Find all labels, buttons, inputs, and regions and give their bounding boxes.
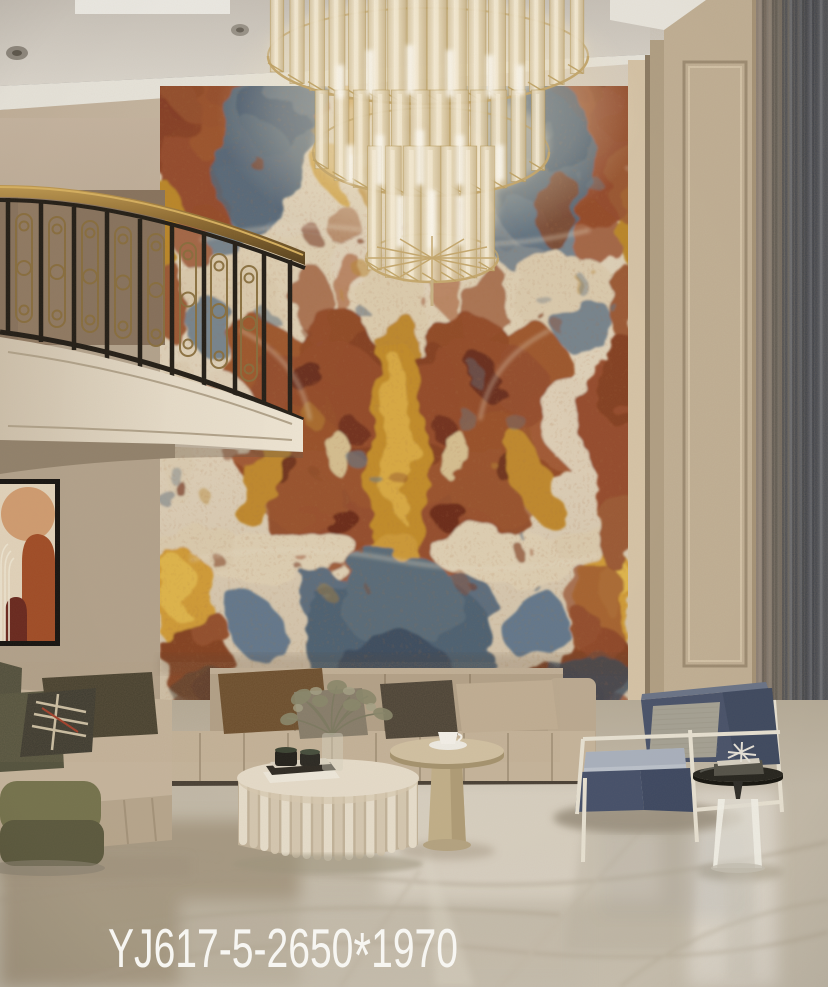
- svg-text:YJ617-5-2650*1970: YJ617-5-2650*1970: [108, 917, 458, 987]
